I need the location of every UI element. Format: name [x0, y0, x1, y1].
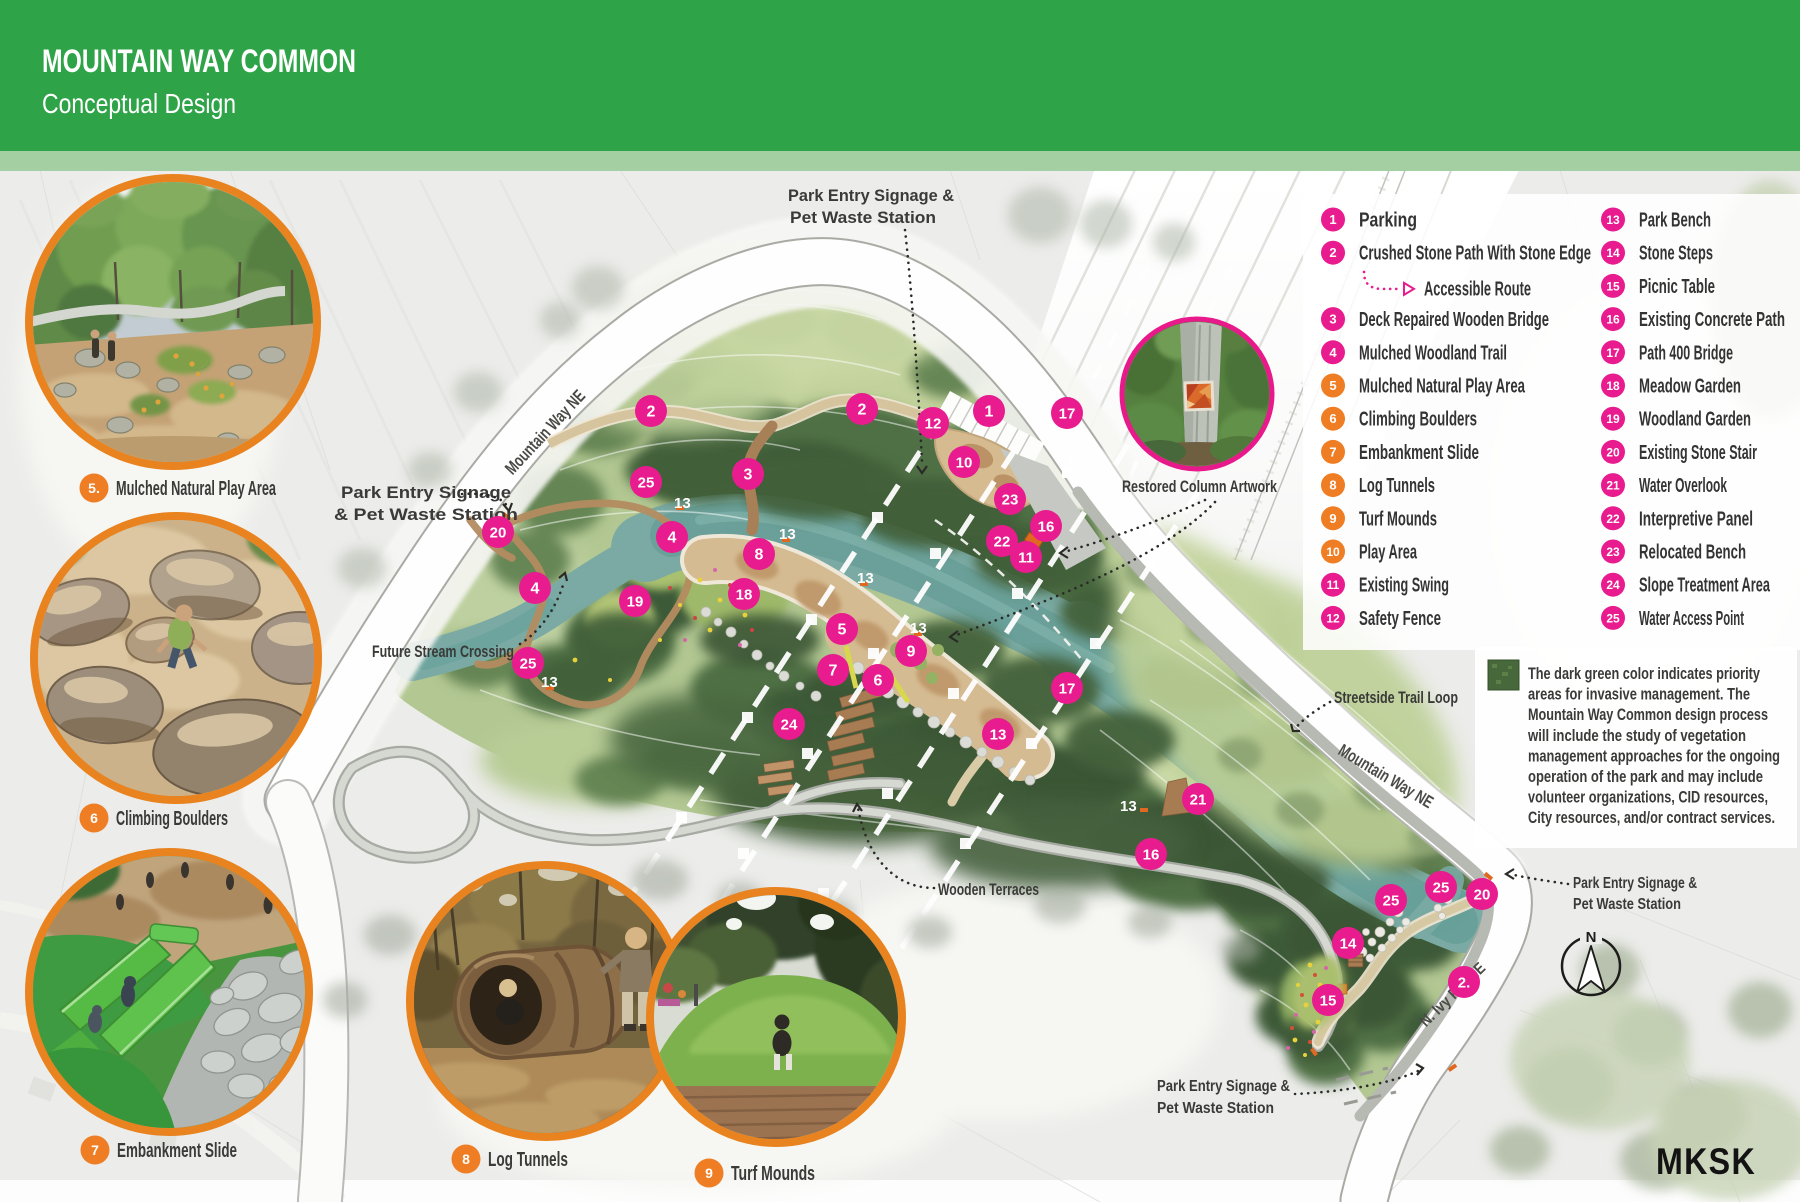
svg-text:Log Tunnels: Log Tunnels [488, 1149, 568, 1171]
svg-text:Pet Waste Station: Pet Waste Station [1573, 896, 1681, 913]
svg-text:13: 13 [674, 495, 691, 512]
svg-text:Picnic Table: Picnic Table [1639, 276, 1715, 298]
svg-text:The dark green color indicates: The dark green color indicates priority [1528, 664, 1760, 683]
svg-text:24: 24 [1606, 578, 1620, 592]
svg-text:MKSK: MKSK [1656, 1141, 1756, 1182]
svg-text:Park Entry Signage &: Park Entry Signage & [1573, 875, 1697, 892]
svg-text:Safety Fence: Safety Fence [1359, 608, 1441, 630]
svg-text:22: 22 [994, 534, 1011, 551]
svg-text:Turf Mounds: Turf Mounds [731, 1163, 815, 1185]
svg-text:25: 25 [1433, 880, 1450, 897]
svg-text:18: 18 [1606, 379, 1620, 393]
svg-text:Existing Swing: Existing Swing [1359, 575, 1449, 597]
svg-text:20: 20 [1474, 887, 1491, 904]
svg-text:7: 7 [1329, 444, 1336, 459]
svg-text:Pet Waste Station: Pet Waste Station [1157, 1100, 1274, 1117]
svg-text:Interpretive Panel: Interpretive Panel [1639, 508, 1753, 530]
svg-text:Log Tunnels: Log Tunnels [1359, 475, 1435, 497]
svg-text:24: 24 [781, 717, 798, 734]
svg-text:Mulched Natural Play Area: Mulched Natural Play Area [116, 478, 277, 500]
svg-text:4: 4 [531, 581, 540, 598]
svg-text:13: 13 [1120, 798, 1137, 815]
svg-text:Embankment Slide: Embankment Slide [117, 1140, 237, 1162]
svg-text:10: 10 [1326, 545, 1340, 559]
svg-text:Park Entry Signage: Park Entry Signage [341, 483, 511, 502]
svg-text:Meadow Garden: Meadow Garden [1639, 376, 1741, 398]
svg-text:Accessible Route: Accessible Route [1424, 278, 1531, 300]
svg-text:11: 11 [1327, 578, 1340, 592]
svg-text:2.: 2. [1458, 975, 1471, 992]
svg-text:19: 19 [627, 594, 644, 611]
svg-text:will include the study of vege: will include the study of vegetation [1527, 726, 1746, 745]
svg-text:Mountain Way Common design pro: Mountain Way Common design process [1528, 705, 1768, 724]
svg-text:21: 21 [1190, 792, 1207, 809]
svg-text:Park Bench: Park Bench [1639, 210, 1711, 232]
svg-text:Mulched Woodland Trail: Mulched Woodland Trail [1359, 342, 1507, 364]
svg-text:Park Entry Signage &: Park Entry Signage & [788, 186, 954, 205]
svg-text:17: 17 [1059, 406, 1076, 423]
svg-text:9: 9 [1329, 511, 1336, 526]
svg-text:12: 12 [925, 416, 942, 433]
svg-text:21: 21 [1606, 479, 1620, 493]
svg-text:4: 4 [668, 530, 677, 547]
svg-text:20: 20 [1606, 445, 1620, 459]
svg-text:12: 12 [1326, 611, 1340, 625]
svg-text:areas for invasive management.: areas for invasive management. The [1528, 685, 1750, 704]
svg-text:6: 6 [1329, 411, 1336, 426]
svg-text:management approaches for the: management approaches for the ongoing [1528, 746, 1780, 765]
svg-text:City resources, and/or contrac: City resources, and/or contract services… [1528, 808, 1775, 827]
svg-text:20: 20 [490, 525, 507, 542]
svg-text:16: 16 [1143, 847, 1160, 864]
svg-text:Woodland Garden: Woodland Garden [1639, 409, 1751, 431]
svg-text:2: 2 [1329, 245, 1336, 260]
svg-text:Pet Waste Station: Pet Waste Station [790, 208, 936, 227]
svg-text:23: 23 [1002, 492, 1019, 509]
svg-text:22: 22 [1606, 512, 1620, 526]
svg-text:Crushed Stone Path With Stone: Crushed Stone Path With Stone Edge [1359, 243, 1591, 265]
svg-text:Parking: Parking [1359, 210, 1417, 232]
svg-text:Conceptual Design: Conceptual Design [42, 88, 236, 119]
svg-text:Relocated Bench: Relocated Bench [1639, 542, 1746, 564]
svg-text:operation of the park and may: operation of the park and may include [1528, 767, 1763, 786]
svg-text:7: 7 [829, 663, 838, 680]
svg-text:Wooden Terraces: Wooden Terraces [938, 880, 1039, 899]
svg-text:17: 17 [1606, 346, 1620, 360]
svg-text:7: 7 [91, 1142, 99, 1158]
svg-text:6: 6 [90, 810, 98, 826]
svg-text:Path 400 Bridge: Path 400 Bridge [1639, 342, 1733, 364]
svg-text:3: 3 [1329, 312, 1336, 327]
svg-text:11: 11 [1018, 550, 1034, 567]
svg-text:Existing Stone Stair: Existing Stone Stair [1639, 442, 1757, 464]
svg-text:18: 18 [736, 587, 753, 604]
svg-text:2: 2 [647, 404, 656, 421]
svg-text:13: 13 [910, 620, 927, 637]
svg-text:9: 9 [907, 644, 916, 661]
svg-text:25: 25 [520, 656, 537, 673]
svg-text:Streetside Trail Loop: Streetside Trail Loop [1334, 688, 1458, 707]
svg-text:1: 1 [985, 404, 994, 421]
svg-text:16: 16 [1038, 519, 1055, 536]
svg-text:Mulched Natural Play Area: Mulched Natural Play Area [1359, 376, 1526, 398]
svg-text:Water Access Point: Water Access Point [1639, 608, 1744, 630]
svg-text:25: 25 [1606, 611, 1620, 625]
svg-text:Climbing Boulders: Climbing Boulders [116, 808, 228, 830]
svg-text:N: N [1586, 929, 1597, 946]
svg-text:15: 15 [1320, 993, 1337, 1010]
svg-text:1: 1 [1329, 212, 1336, 227]
svg-text:5: 5 [1329, 378, 1336, 393]
svg-text:Park Entry Signage &: Park Entry Signage & [1157, 1078, 1290, 1095]
svg-text:Slope Treatment Area: Slope Treatment Area [1639, 575, 1771, 597]
svg-text:Deck Repaired Wooden Bridge: Deck Repaired Wooden Bridge [1359, 309, 1549, 331]
svg-text:8: 8 [1329, 478, 1336, 493]
svg-text:17: 17 [1059, 681, 1076, 698]
svg-text:10: 10 [956, 455, 973, 472]
svg-text:25: 25 [638, 475, 655, 492]
svg-text:13: 13 [541, 674, 558, 691]
svg-text:8: 8 [462, 1151, 470, 1167]
svg-text:4: 4 [1329, 345, 1337, 360]
svg-text:13: 13 [857, 570, 874, 587]
svg-text:Climbing Boulders: Climbing Boulders [1359, 409, 1477, 431]
svg-text:2: 2 [858, 402, 867, 419]
svg-text:Restored Column Artwork: Restored Column Artwork [1122, 477, 1277, 496]
svg-text:6: 6 [874, 673, 883, 690]
svg-text:MOUNTAIN WAY COMMON: MOUNTAIN WAY COMMON [42, 43, 356, 79]
svg-text:19: 19 [1606, 412, 1620, 426]
svg-text:Future Stream Crossing: Future Stream Crossing [372, 642, 514, 661]
svg-text:13: 13 [990, 727, 1007, 744]
svg-text:8: 8 [755, 547, 764, 564]
svg-text:volunteer organizations, CID r: volunteer organizations, CID resources, [1528, 788, 1768, 807]
svg-text:16: 16 [1606, 313, 1620, 327]
svg-text:25: 25 [1383, 893, 1400, 910]
svg-text:5: 5 [838, 622, 847, 639]
svg-text:23: 23 [1606, 545, 1620, 559]
svg-text:13: 13 [779, 526, 796, 543]
svg-text:9: 9 [705, 1165, 713, 1181]
svg-text:13: 13 [1606, 213, 1620, 227]
svg-text:Embankment Slide: Embankment Slide [1359, 442, 1479, 464]
svg-text:15: 15 [1606, 279, 1620, 293]
svg-text:3: 3 [744, 467, 753, 484]
svg-text:Existing Concrete Path: Existing Concrete Path [1639, 309, 1785, 331]
svg-text:14: 14 [1340, 936, 1357, 953]
svg-text:Stone Steps: Stone Steps [1639, 243, 1713, 265]
svg-text:Turf Mounds: Turf Mounds [1359, 508, 1437, 530]
svg-text:Water Overlook: Water Overlook [1639, 475, 1728, 497]
svg-text:5.: 5. [88, 480, 100, 496]
svg-text:Play Area: Play Area [1359, 542, 1418, 564]
svg-text:14: 14 [1606, 246, 1620, 260]
